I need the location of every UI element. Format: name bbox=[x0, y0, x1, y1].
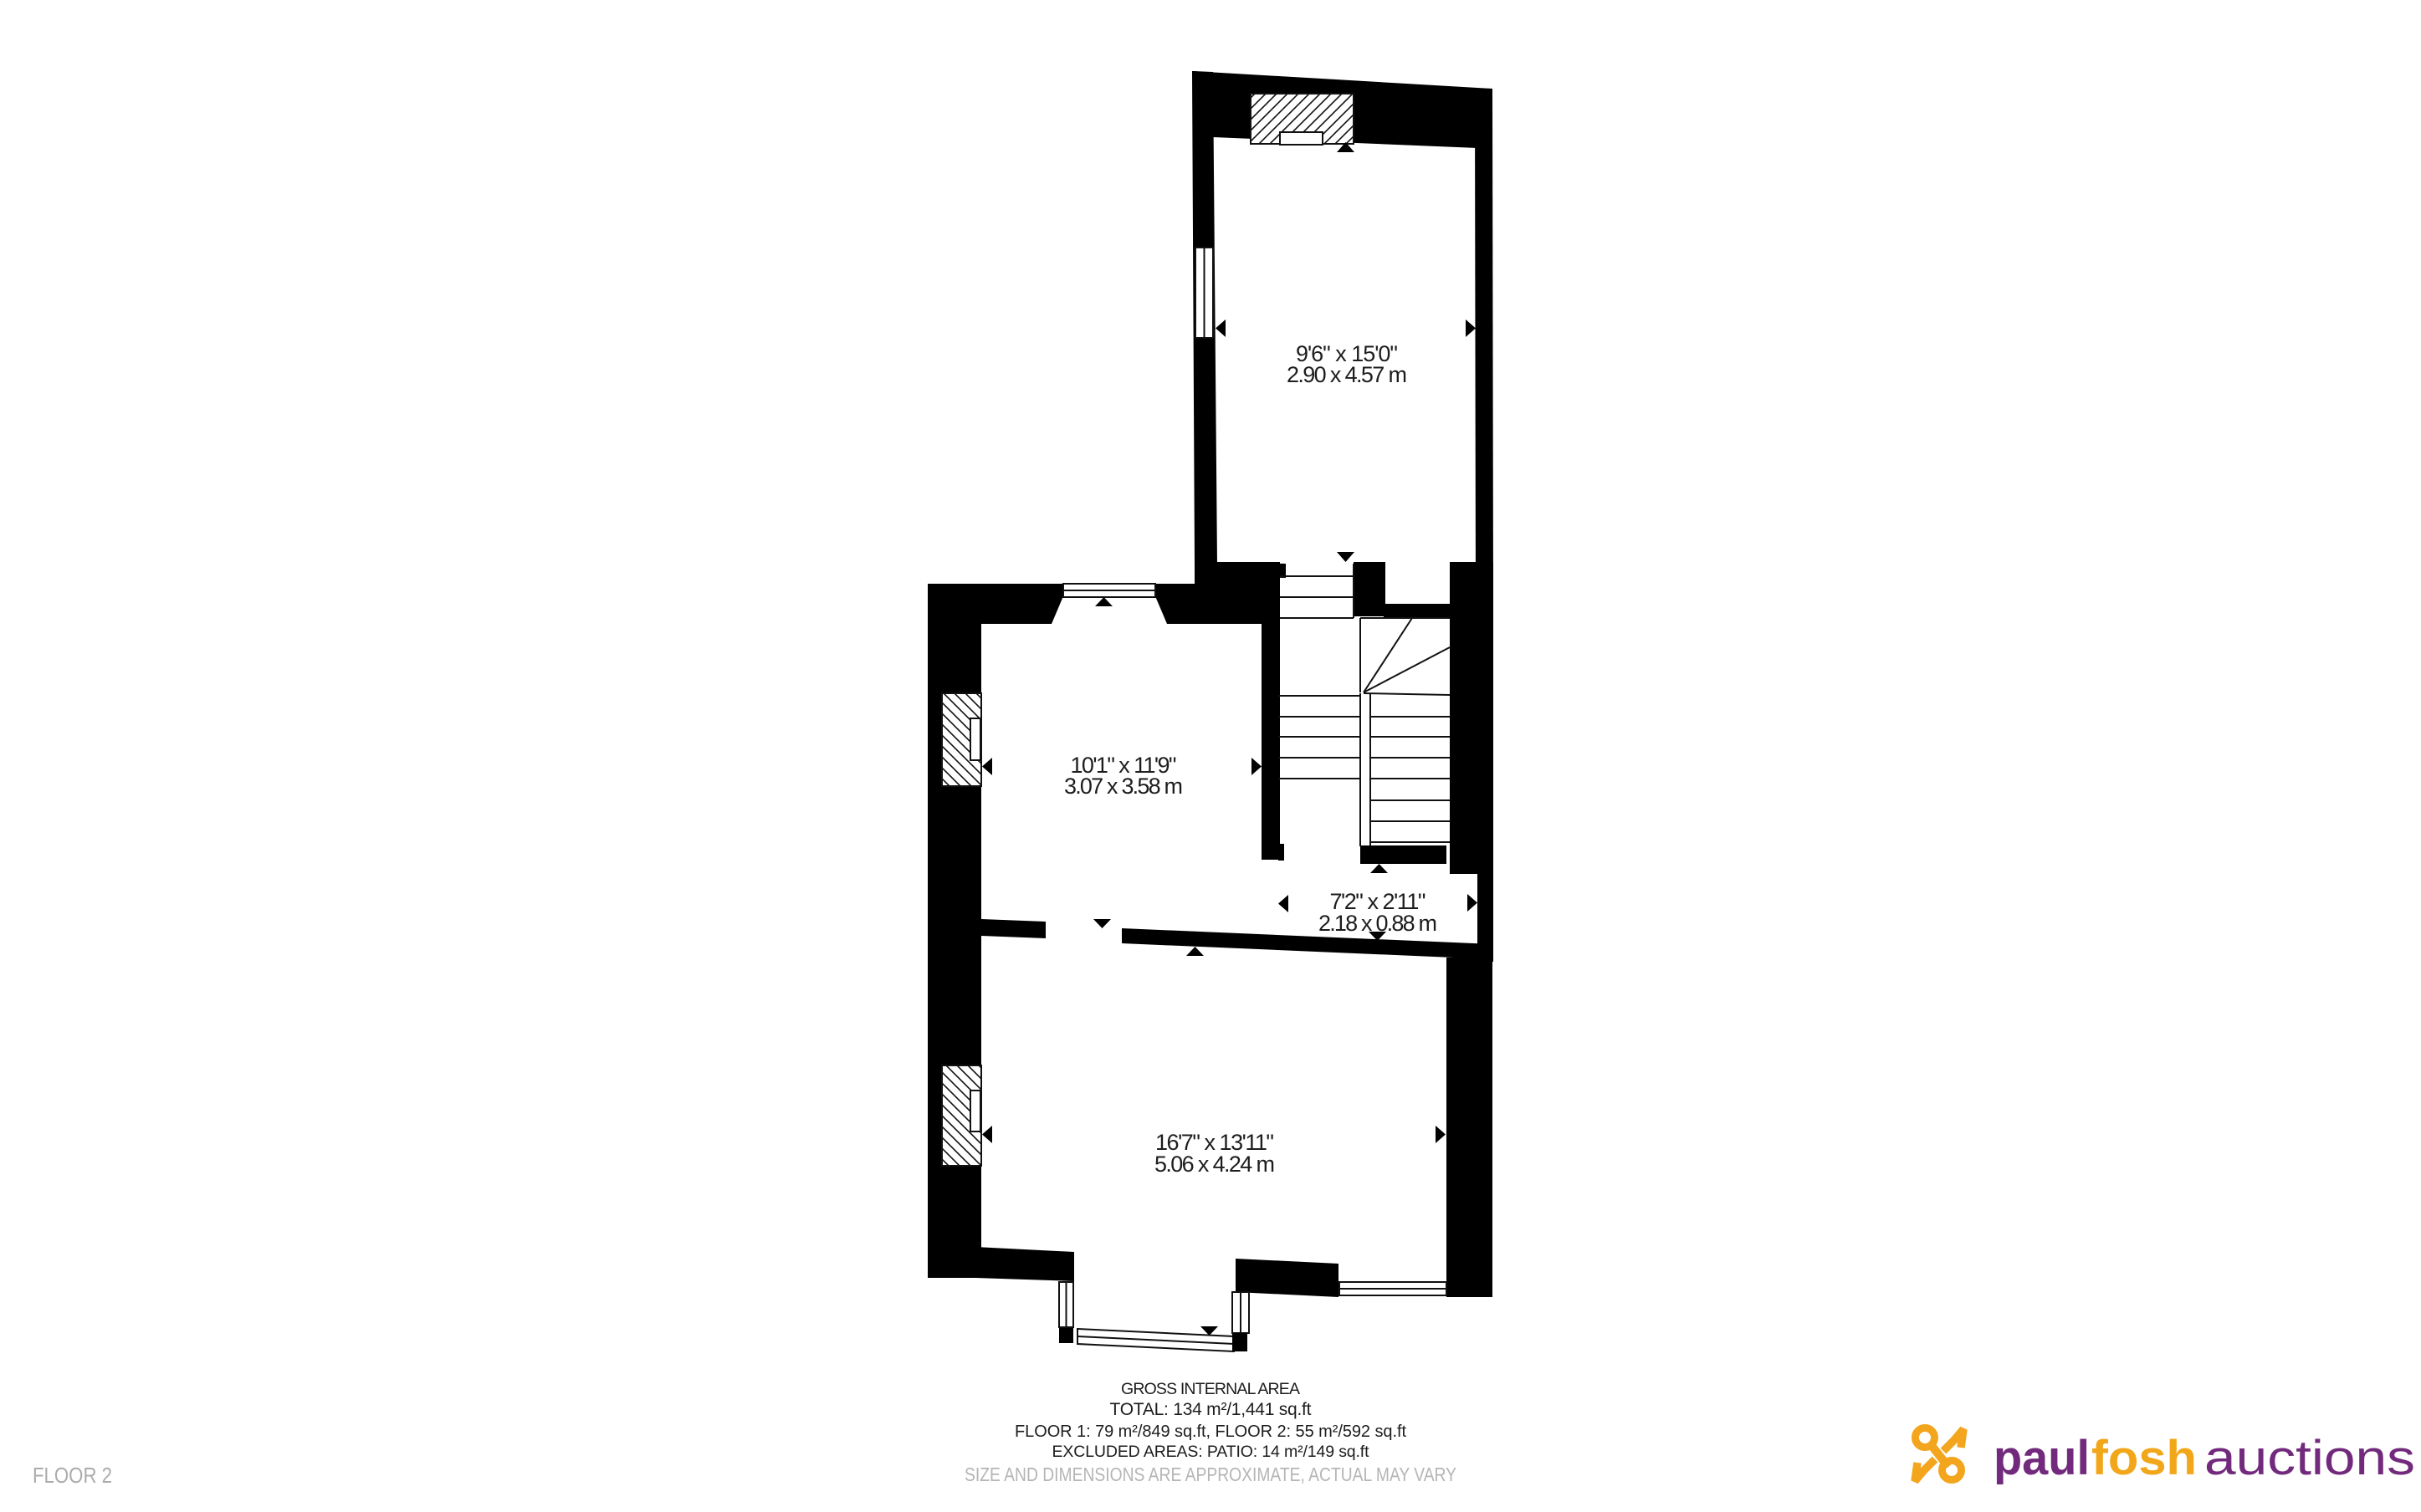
svg-text:TOTAL: 134 m²/1,441 sq.ft: TOTAL: 134 m²/1,441 sq.ft bbox=[1110, 1400, 1312, 1419]
svg-text:SIZE AND DIMENSIONS ARE APPROX: SIZE AND DIMENSIONS ARE APPROXIMATE, ACT… bbox=[965, 1463, 1456, 1485]
svg-text:5.06 x 4.24 m: 5.06 x 4.24 m bbox=[1154, 1152, 1275, 1177]
svg-text:GROSS INTERNAL AREA: GROSS INTERNAL AREA bbox=[1121, 1380, 1300, 1398]
svg-text:fosh: fosh bbox=[2091, 1431, 2197, 1485]
svg-text:2.18 x 0.88 m: 2.18 x 0.88 m bbox=[1318, 911, 1437, 936]
svg-text:auctions: auctions bbox=[2204, 1431, 2415, 1485]
svg-text:3.07 x 3.58 m: 3.07 x 3.58 m bbox=[1064, 774, 1183, 799]
svg-text:FLOOR 2: FLOOR 2 bbox=[33, 1463, 112, 1488]
svg-text:2.90 x 4.57 m: 2.90 x 4.57 m bbox=[1287, 362, 1407, 387]
svg-text:paul: paul bbox=[1994, 1431, 2090, 1485]
svg-text:EXCLUDED AREAS: PATIO: 14 m²/1: EXCLUDED AREAS: PATIO: 14 m²/149 sq.ft bbox=[1052, 1443, 1370, 1461]
svg-text:FLOOR 1: 79 m²/849 sq.ft, FLOO: FLOOR 1: 79 m²/849 sq.ft, FLOOR 2: 55 m²… bbox=[1015, 1423, 1406, 1441]
